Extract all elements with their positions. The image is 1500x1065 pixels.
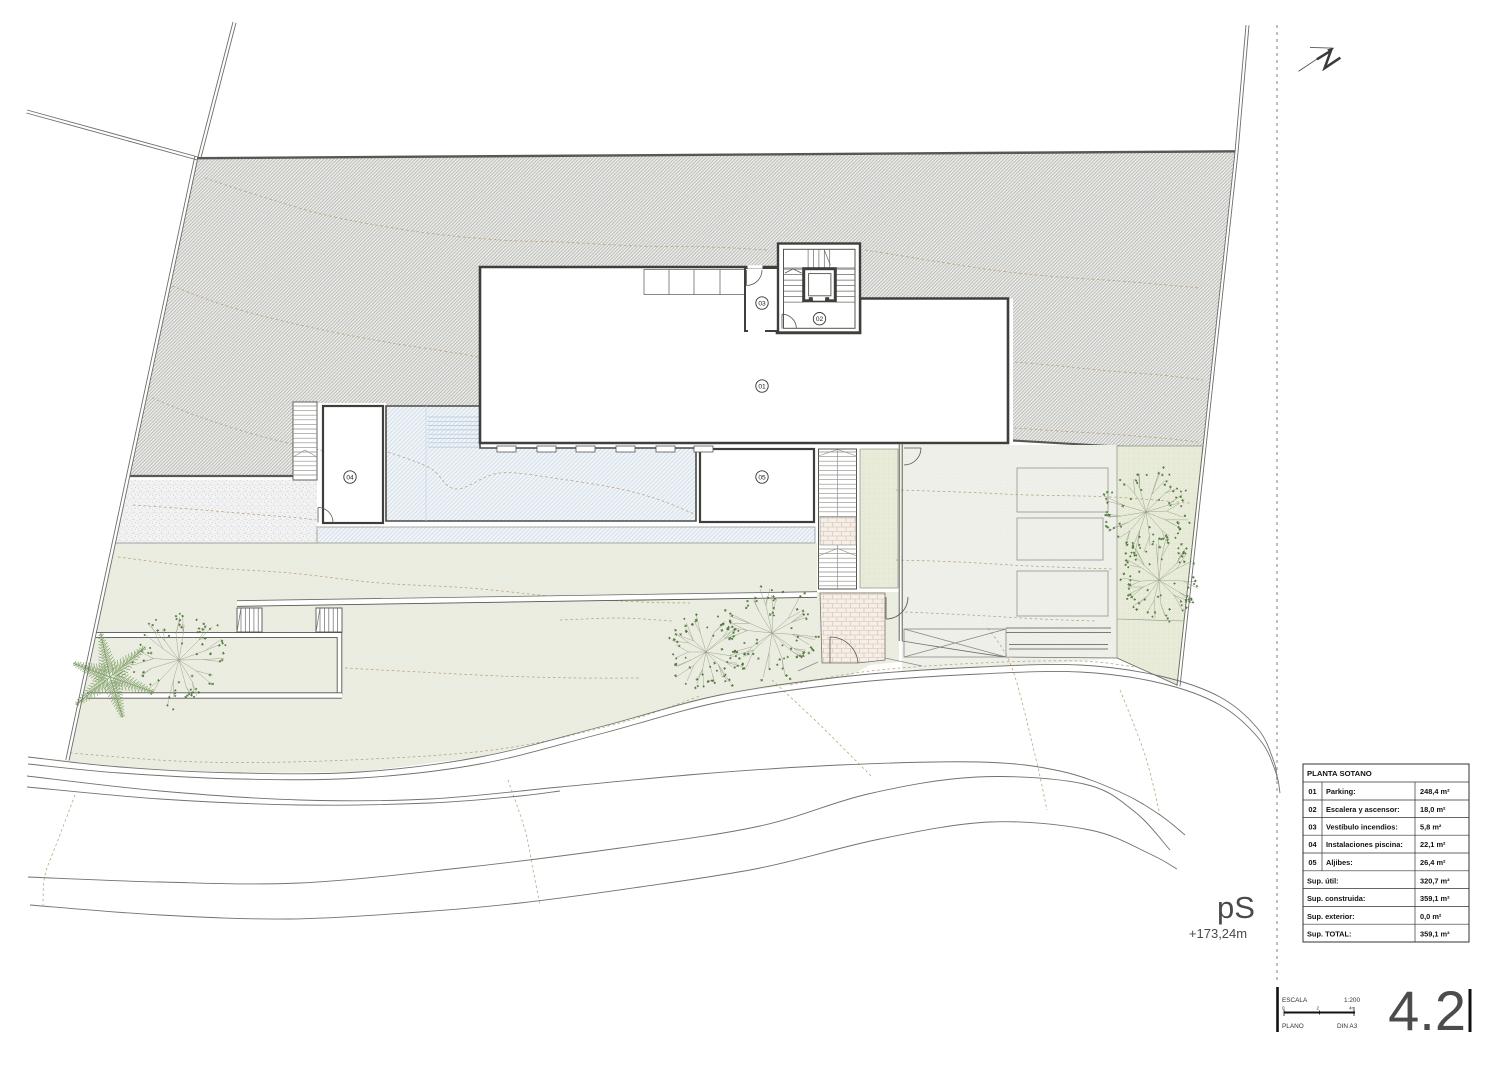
- svg-text:PLANTA SOTANO: PLANTA SOTANO: [1307, 769, 1372, 778]
- svg-text:pS: pS: [1217, 890, 1255, 925]
- svg-text:PLANO: PLANO: [1282, 1023, 1304, 1030]
- svg-text:Aljibes:: Aljibes:: [1326, 858, 1353, 867]
- svg-text:03: 03: [1308, 823, 1316, 832]
- svg-text:0,0 m²: 0,0 m²: [1420, 912, 1442, 921]
- svg-text:5,8 m²: 5,8 m²: [1420, 823, 1442, 832]
- svg-text:04: 04: [346, 474, 354, 481]
- svg-text:248,4 m²: 248,4 m²: [1420, 787, 1450, 796]
- svg-text:Sup. construida:: Sup. construida:: [1307, 894, 1365, 903]
- svg-text:01: 01: [1308, 787, 1316, 796]
- svg-text:Sup. exterior:: Sup. exterior:: [1307, 912, 1355, 921]
- svg-text:4.2: 4.2: [1388, 979, 1466, 1042]
- svg-text:1:200: 1:200: [1344, 997, 1360, 1004]
- svg-text:Escalera y ascensor:: Escalera y ascensor:: [1326, 805, 1400, 814]
- svg-text:Instalaciones piscina:: Instalaciones piscina:: [1326, 840, 1403, 849]
- svg-text:359,1 m²: 359,1 m²: [1420, 894, 1450, 903]
- svg-text:320,7 m²: 320,7 m²: [1420, 876, 1450, 885]
- svg-text:18,0 m²: 18,0 m²: [1420, 805, 1446, 814]
- svg-text:4m: 4m: [1349, 1006, 1356, 1011]
- svg-text:04: 04: [1308, 840, 1317, 849]
- svg-text:03: 03: [758, 300, 766, 307]
- svg-text:ESCALA: ESCALA: [1282, 997, 1308, 1004]
- svg-text:22,1 m²: 22,1 m²: [1420, 840, 1446, 849]
- svg-text:Parking:: Parking:: [1326, 787, 1356, 796]
- svg-text:05: 05: [758, 474, 766, 481]
- svg-text:Sup. TOTAL:: Sup. TOTAL:: [1307, 930, 1351, 939]
- svg-text:01: 01: [758, 383, 766, 390]
- svg-text:+173,24m: +173,24m: [1189, 926, 1247, 941]
- svg-text:26,4 m²: 26,4 m²: [1420, 858, 1446, 867]
- svg-text:02: 02: [1308, 805, 1316, 814]
- svg-text:Vestíbulo incendios:: Vestíbulo incendios:: [1326, 823, 1398, 832]
- svg-text:0: 0: [1282, 1006, 1285, 1011]
- svg-text:359,1 m²: 359,1 m²: [1420, 930, 1450, 939]
- svg-text:DIN A3: DIN A3: [1337, 1023, 1358, 1030]
- svg-text:Sup. útil:: Sup. útil:: [1307, 876, 1339, 885]
- svg-text:05: 05: [1308, 858, 1316, 867]
- svg-text:02: 02: [816, 316, 824, 323]
- svg-text:2: 2: [1317, 1006, 1320, 1011]
